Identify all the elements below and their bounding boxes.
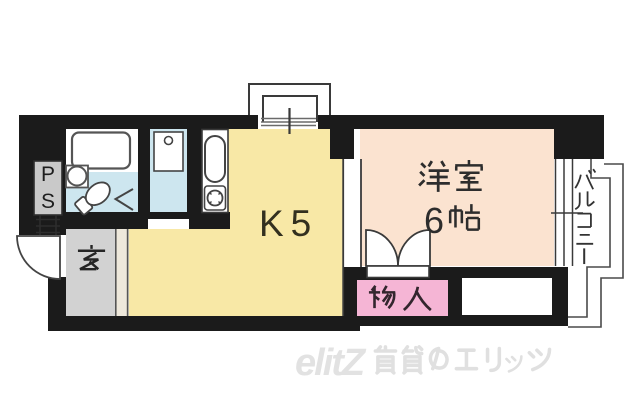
svg-text:P: P [41, 163, 55, 186]
svg-text:K5: K5 [259, 203, 318, 244]
svg-text:elitZ: elitZ [295, 342, 367, 384]
svg-text:S: S [41, 190, 55, 213]
svg-text:6: 6 [424, 200, 444, 241]
